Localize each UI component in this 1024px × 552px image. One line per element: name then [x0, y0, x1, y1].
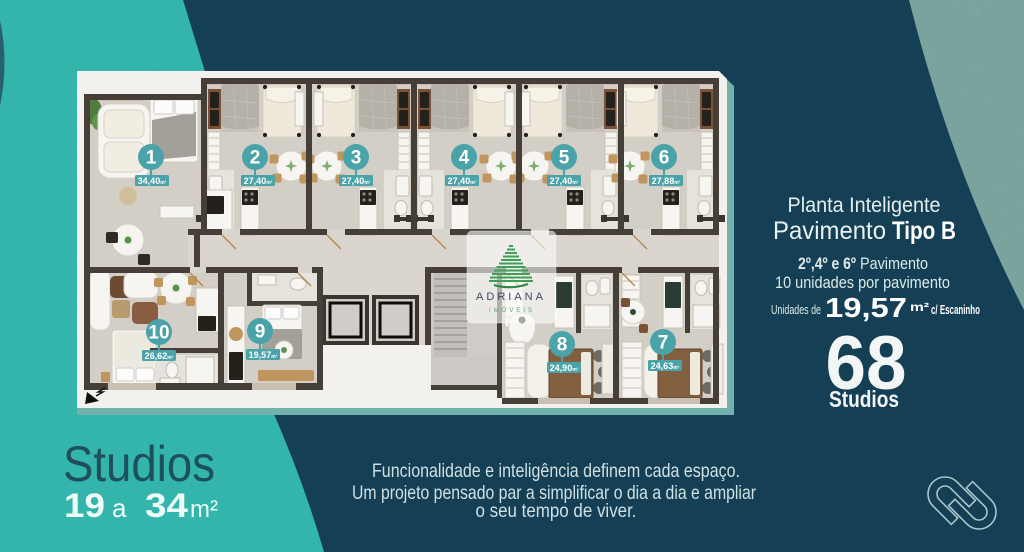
svg-text:IMÓVEIS: IMÓVEIS — [489, 307, 535, 314]
svg-text:7: 7 — [658, 333, 669, 354]
svg-text:c/ Escaninho: c/ Escaninho — [931, 302, 980, 317]
svg-text:19,57: 19,57 — [825, 292, 907, 323]
svg-text:10 unidades por pavimento: 10 unidades por pavimento — [775, 273, 950, 292]
svg-text:Tipo B: Tipo B — [892, 217, 956, 245]
svg-text:a: a — [112, 493, 127, 523]
svg-text:Pavimento: Pavimento — [860, 254, 928, 273]
svg-text:1: 1 — [146, 148, 157, 169]
svg-text:ADRIANA: ADRIANA — [476, 291, 546, 303]
svg-text:10: 10 — [148, 323, 169, 344]
svg-text:m²: m² — [190, 496, 218, 523]
svg-text:19: 19 — [64, 487, 105, 525]
svg-text:Funcionalidade e inteligência: Funcionalidade e inteligência definem ca… — [372, 460, 740, 482]
svg-text:2º,4º e 6º: 2º,4º e 6º — [798, 254, 856, 273]
svg-text:Pavimento: Pavimento — [773, 217, 886, 245]
svg-text:8: 8 — [557, 335, 568, 356]
svg-text:2: 2 — [250, 148, 261, 169]
svg-text:5: 5 — [559, 148, 570, 169]
svg-text:4: 4 — [459, 148, 470, 169]
svg-text:3: 3 — [351, 148, 362, 169]
svg-text:34: 34 — [145, 487, 188, 525]
svg-text:Planta Inteligente: Planta Inteligente — [788, 194, 941, 217]
svg-text:9: 9 — [255, 322, 266, 343]
svg-text:Unidades de: Unidades de — [771, 302, 821, 317]
svg-text:6: 6 — [659, 148, 670, 169]
svg-text:m²: m² — [910, 300, 929, 314]
svg-text:Studios: Studios — [63, 436, 215, 492]
svg-text:Studios: Studios — [829, 386, 899, 412]
svg-text:o seu tempo de viver.: o seu tempo de viver. — [476, 500, 637, 522]
